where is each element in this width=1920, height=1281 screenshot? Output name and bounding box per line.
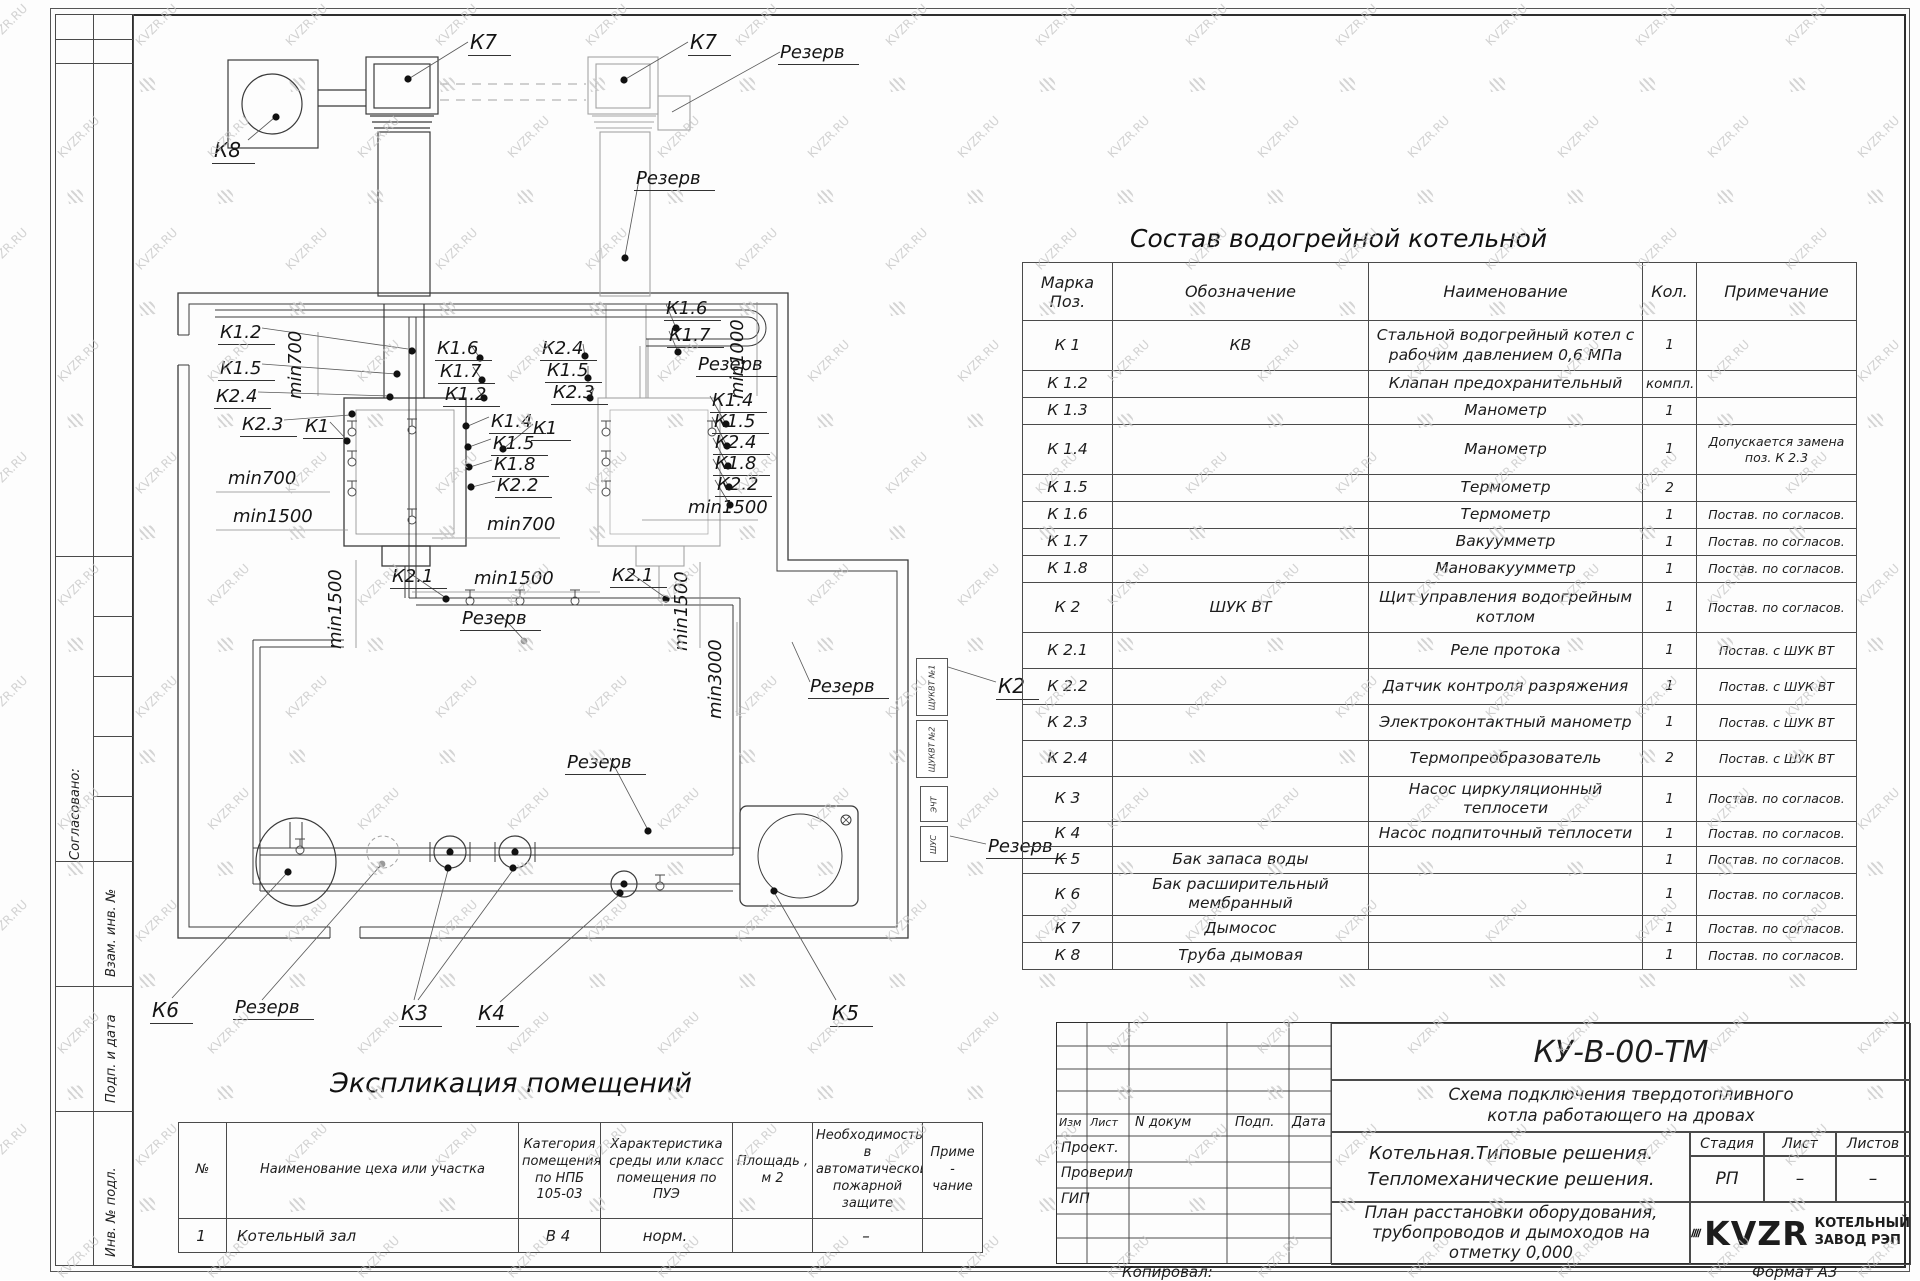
parts-cell-pos: К 2.1 [1023, 633, 1113, 669]
watermark-text: KVZR.RU [0, 897, 30, 944]
rooms-cell: норм. [601, 1219, 733, 1253]
equipment-box-label: ЭЧТ [930, 796, 939, 812]
rooms-col-header: Категория помещения по НПБ 105-03 [519, 1123, 601, 1219]
watermark-text: KVZR.RU [0, 1, 30, 48]
rooms-col-header: Приме - чание [923, 1123, 983, 1219]
parts-cell-des [1113, 475, 1369, 502]
format-label: Формат А3 [1752, 1263, 1837, 1281]
parts-table-row: К 1.8Мановакуумметр1Постав. по согласов. [1023, 556, 1857, 583]
parts-cell-note: Постав. по согласов. [1697, 822, 1857, 847]
parts-cell-note: Постав. по согласов. [1697, 556, 1857, 583]
rooms-explication-table: №Наименование цеха или участкаКатегория … [178, 1122, 983, 1253]
parts-cell-note: Постав. по согласов. [1697, 777, 1857, 822]
stamp-podp-data: Подп. и дата [104, 1014, 119, 1103]
parts-cell-pos: К 5 [1023, 847, 1113, 874]
parts-cell-qty: 1 [1643, 529, 1697, 556]
parts-table: Марка Поз. Обозначение Наименование Кол.… [1022, 262, 1857, 970]
rooms-cell: 1 [179, 1219, 227, 1253]
parts-cell-note: Постав. с ШУК ВТ [1697, 705, 1857, 741]
parts-cell-name: Реле протока [1369, 633, 1643, 669]
parts-table-row: К 2.1Реле протока1Постав. с ШУК ВТ [1023, 633, 1857, 669]
parts-cell-note: Постав. с ШУК ВТ [1697, 669, 1857, 705]
col-header-pos: Марка Поз. [1023, 263, 1113, 321]
parts-cell-note [1697, 371, 1857, 398]
parts-cell-qty: 1 [1643, 777, 1697, 822]
parts-cell-qty: 2 [1643, 475, 1697, 502]
parts-cell-note: Постав. по согласов. [1697, 529, 1857, 556]
rooms-col-header: Необходимость в автоматической пожарной … [813, 1123, 923, 1219]
parts-cell-note [1697, 398, 1857, 425]
parts-table-row: К 1.7Вакуумметр1Постав. по согласов. [1023, 529, 1857, 556]
parts-cell-pos: К 3 [1023, 777, 1113, 822]
parts-cell-pos: К 2.4 [1023, 741, 1113, 777]
parts-cell-name: Термометр [1369, 502, 1643, 529]
rooms-table-row: 1Котельный залВ 4норм.– [179, 1219, 983, 1253]
parts-table-row: К 2.2Датчик контроля разряжения1Постав. … [1023, 669, 1857, 705]
stamp-vzam-inv: Взам. инв. № [104, 889, 119, 977]
equipment-box: ЩУКВТ №1 [916, 658, 948, 716]
role-proveril: Проверил [1061, 1165, 1133, 1181]
rooms-col-header: Наименование цеха или участка [227, 1123, 519, 1219]
doc-number: КУ-В-00-ТМ [1331, 1023, 1911, 1081]
col-header-note: Примечание [1697, 263, 1857, 321]
sheets-value: – [1835, 1155, 1911, 1203]
parts-table-row: К 1.2Клапан предохранительныйкомпл. [1023, 371, 1857, 398]
rooms-cell [923, 1219, 983, 1253]
rooms-col-header: № [179, 1123, 227, 1219]
parts-cell-qty: 1 [1643, 847, 1697, 874]
parts-cell-pos: К 1 [1023, 321, 1113, 371]
equipment-box-label: ЩУКВТ №2 [928, 726, 937, 772]
parts-cell-pos: К 1.3 [1023, 398, 1113, 425]
parts-cell-pos: К 4 [1023, 822, 1113, 847]
sheet-content-title: План расстановки оборудования, трубопров… [1331, 1201, 1691, 1265]
parts-cell-note: Постав. с ШУК ВТ [1697, 741, 1857, 777]
rooms-col-header: Характеристика среды или класс помещения… [601, 1123, 733, 1219]
rooms-cell: Котельный зал [227, 1219, 519, 1253]
drawing-sheet: Согласовано: Взам. инв. № Подп. и дата И… [0, 0, 1920, 1280]
parts-cell-name [1369, 942, 1643, 969]
parts-cell-qty: 1 [1643, 425, 1697, 475]
doc-title: Схема подключения твердотопливного котла… [1331, 1079, 1911, 1133]
stamp-soglasovano: Согласовано: [68, 768, 83, 860]
parts-cell-qty: 1 [1643, 583, 1697, 633]
watermark-text: KVZR.RU [0, 449, 30, 496]
parts-cell-qty: 1 [1643, 321, 1697, 371]
parts-cell-des [1113, 705, 1369, 741]
rooms-cell [733, 1219, 813, 1253]
parts-cell-des [1113, 556, 1369, 583]
parts-cell-note: Постав. с ШУК ВТ [1697, 633, 1857, 669]
parts-cell-name [1369, 847, 1643, 874]
rooms-col-header: Площадь , м 2 [733, 1123, 813, 1219]
parts-cell-des: Бак запаса воды [1113, 847, 1369, 874]
parts-cell-pos: К 1.8 [1023, 556, 1113, 583]
parts-cell-name: Мановакуумметр [1369, 556, 1643, 583]
rev-col-list: Лист [1090, 1116, 1118, 1129]
parts-cell-des [1113, 529, 1369, 556]
parts-cell-qty: 1 [1643, 556, 1697, 583]
parts-cell-des [1113, 741, 1369, 777]
parts-cell-note: Постав. по согласов. [1697, 874, 1857, 916]
parts-cell-pos: К 2.3 [1023, 705, 1113, 741]
col-header-qty: Кол. [1643, 263, 1697, 321]
parts-cell-note: Постав. по согласов. [1697, 583, 1857, 633]
stage-value: РП [1689, 1155, 1765, 1203]
parts-table-row: К 5Бак запаса воды1Постав. по согласов. [1023, 847, 1857, 874]
parts-table-row: К 6Бак расширительный мембранный1Постав.… [1023, 874, 1857, 916]
parts-cell-name: Стальной водогрейный котел с рабочим дав… [1369, 321, 1643, 371]
parts-cell-note: Постав. по согласов. [1697, 847, 1857, 874]
parts-cell-name: Клапан предохранительный [1369, 371, 1643, 398]
parts-cell-pos: К 1.6 [1023, 502, 1113, 529]
logo-text: KVZR [1704, 1214, 1808, 1253]
col-header-designation: Обозначение [1113, 263, 1369, 321]
parts-cell-note: Допускается замена поз. К 2.3 [1697, 425, 1857, 475]
copied-label: Копировал: [1122, 1263, 1213, 1281]
parts-cell-qty: 1 [1643, 705, 1697, 741]
parts-cell-note: Постав. по согласов. [1697, 942, 1857, 969]
parts-cell-name: Термометр [1369, 475, 1643, 502]
equipment-box: ЩУКВТ №2 [916, 720, 948, 778]
parts-cell-des [1113, 371, 1369, 398]
parts-cell-qty: 2 [1643, 741, 1697, 777]
rooms-table-title: Экспликация помещений [330, 1068, 692, 1099]
parts-cell-des [1113, 502, 1369, 529]
parts-table-title: Состав водогрейной котельной [1130, 224, 1547, 253]
rev-col-ndocum: N докум [1135, 1115, 1191, 1130]
parts-cell-pos: К 6 [1023, 874, 1113, 916]
parts-table-row: К 2.4Термопреобразователь2Постав. с ШУК … [1023, 741, 1857, 777]
parts-cell-qty: 1 [1643, 502, 1697, 529]
parts-table-row: К 1КВСтальной водогрейный котел с рабочи… [1023, 321, 1857, 371]
parts-cell-name [1369, 874, 1643, 916]
parts-cell-note: Постав. по согласов. [1697, 502, 1857, 529]
parts-cell-note [1697, 475, 1857, 502]
parts-table-row: К 1.5Термометр2 [1023, 475, 1857, 502]
rooms-cell: В 4 [519, 1219, 601, 1253]
parts-cell-name: Насос подпиточный теплосети [1369, 822, 1643, 847]
parts-cell-des [1113, 425, 1369, 475]
parts-cell-name: Щит управления водогрейным котлом [1369, 583, 1643, 633]
equipment-box: ШУС [920, 826, 948, 862]
parts-cell-pos: К 1.5 [1023, 475, 1113, 502]
parts-cell-des: Дымосос [1113, 915, 1369, 942]
equipment-box: ЭЧТ [920, 786, 948, 822]
parts-cell-des: Труба дымовая [1113, 942, 1369, 969]
parts-cell-pos: К 2.2 [1023, 669, 1113, 705]
watermark-text: KVZR.RU [0, 673, 30, 720]
equipment-box-label: ШУС [929, 834, 938, 853]
company-name: КОТЕЛЬНЫЙ ЗАВОД РЭП [1815, 1216, 1910, 1250]
sheet-label: Лист [1763, 1131, 1837, 1157]
parts-cell-qty: 1 [1643, 633, 1697, 669]
watermark-text: KVZR.RU [0, 1121, 30, 1168]
parts-cell-des [1113, 398, 1369, 425]
parts-table-row: К 2.3Электроконтактный манометр1Постав. … [1023, 705, 1857, 741]
sheet-value: – [1763, 1155, 1837, 1203]
sheets-label: Листов [1835, 1131, 1911, 1157]
parts-cell-name: Электроконтактный манометр [1369, 705, 1643, 741]
stage-label: Стадия [1689, 1131, 1765, 1157]
parts-cell-name: Манометр [1369, 425, 1643, 475]
parts-cell-qty: 1 [1643, 874, 1697, 916]
role-proekt: Проект. [1061, 1140, 1119, 1156]
col-header-name: Наименование [1369, 263, 1643, 321]
parts-cell-des [1113, 822, 1369, 847]
parts-cell-des [1113, 669, 1369, 705]
parts-cell-des: КВ [1113, 321, 1369, 371]
rev-col-data: Дата [1292, 1115, 1326, 1130]
parts-cell-pos: К 7 [1023, 915, 1113, 942]
company-logo-cell: KVZR КОТЕЛЬНЫЙ ЗАВОД РЭП [1689, 1201, 1911, 1265]
stamp-inv-podl: Инв. № подл. [104, 1167, 119, 1257]
parts-cell-des: ШУК ВТ [1113, 583, 1369, 633]
parts-table-row: К 4Насос подпиточный теплосети1Постав. п… [1023, 822, 1857, 847]
watermark-text: KVZR.RU [0, 225, 30, 272]
parts-cell-des [1113, 633, 1369, 669]
parts-cell-name: Датчик контроля разряжения [1369, 669, 1643, 705]
title-block: Изм Лист N докум Подп. Дата Проект. Пров… [1056, 1022, 1910, 1264]
project-name: Котельная.Типовые решения. Тепломеханиче… [1331, 1131, 1691, 1203]
parts-cell-name [1369, 915, 1643, 942]
parts-cell-note: Постав. по согласов. [1697, 915, 1857, 942]
parts-table-row: К 3Насос циркуляционный теплосети1Постав… [1023, 777, 1857, 822]
parts-cell-qty: 1 [1643, 669, 1697, 705]
parts-cell-pos: К 1.7 [1023, 529, 1113, 556]
left-stamp-column: Согласовано: Взам. инв. № Подп. и дата И… [55, 14, 134, 1266]
parts-table-row: К 7Дымосос1Постав. по согласов. [1023, 915, 1857, 942]
parts-table-row: К 1.4Манометр1Допускается замена поз. К … [1023, 425, 1857, 475]
parts-cell-des [1113, 777, 1369, 822]
parts-cell-qty: компл. [1643, 371, 1697, 398]
parts-cell-name: Термопреобразователь [1369, 741, 1643, 777]
parts-cell-name: Вакуумметр [1369, 529, 1643, 556]
rooms-cell: – [813, 1219, 923, 1253]
parts-cell-pos: К 1.2 [1023, 371, 1113, 398]
parts-table-row: К 1.6Термометр1Постав. по согласов. [1023, 502, 1857, 529]
parts-cell-pos: К 8 [1023, 942, 1113, 969]
parts-table-row: К 8Труба дымовая1Постав. по согласов. [1023, 942, 1857, 969]
parts-cell-qty: 1 [1643, 398, 1697, 425]
role-gip: ГИП [1061, 1191, 1090, 1207]
rev-col-podp: Подп. [1235, 1115, 1274, 1130]
parts-cell-pos: К 1.4 [1023, 425, 1113, 475]
parts-cell-qty: 1 [1643, 915, 1697, 942]
rev-col-izm: Изм [1059, 1116, 1081, 1129]
parts-cell-des: Бак расширительный мембранный [1113, 874, 1369, 916]
parts-table-row: К 2ШУК ВТЩит управления водогрейным котл… [1023, 583, 1857, 633]
parts-table-row: К 1.3Манометр1 [1023, 398, 1857, 425]
equipment-box-label: ЩУКВТ №1 [928, 664, 937, 710]
parts-cell-note [1697, 321, 1857, 371]
parts-cell-name: Насос циркуляционный теплосети [1369, 777, 1643, 822]
kvzr-logo-icon [1690, 1213, 1702, 1253]
parts-cell-pos: К 2 [1023, 583, 1113, 633]
parts-cell-qty: 1 [1643, 942, 1697, 969]
parts-cell-name: Манометр [1369, 398, 1643, 425]
parts-cell-qty: 1 [1643, 822, 1697, 847]
